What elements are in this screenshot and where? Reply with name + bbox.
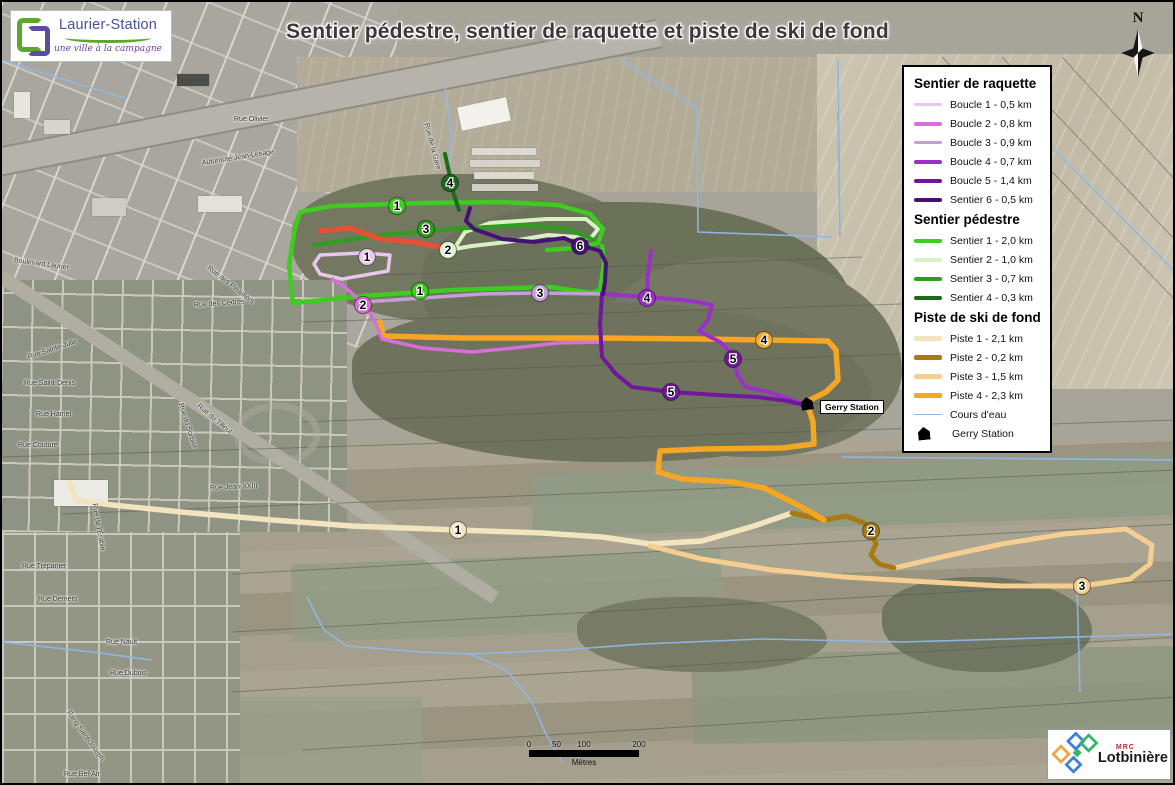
legend-swatch xyxy=(914,336,942,341)
trail-marker-number: 4 xyxy=(644,291,651,305)
legend-item-label: Sentier 4 - 0,3 km xyxy=(950,292,1033,304)
trail-marker-number: 2 xyxy=(360,298,367,312)
legend-panel: Sentier de raquetteBoucle 1 - 0,5 kmBouc… xyxy=(902,65,1052,453)
map-sheet: 1342112364554123 Rue TalbotRue OlivierAu… xyxy=(0,0,1175,785)
legend-item-label: Sentier 2 - 1,0 km xyxy=(950,254,1033,266)
legend-item-label: Gerry Station xyxy=(952,428,1014,440)
legend-item: Piste 2 - 0,2 km xyxy=(914,348,1042,367)
mrc-name-label: Lotbinière xyxy=(1098,751,1168,766)
legend-item-label: Sentier 3 - 0,7 km xyxy=(950,273,1033,285)
legend-item: Cours d'eau xyxy=(914,405,1042,424)
trail-marker-number: 3 xyxy=(537,286,544,300)
legend-swatch xyxy=(914,103,942,106)
legend-item: Sentier 1 - 2,0 km xyxy=(914,231,1042,250)
legend-item: Boucle 4 - 0,7 km xyxy=(914,152,1042,171)
street-label: Rue Trépanier xyxy=(22,563,66,570)
trail-marker-number: 1 xyxy=(364,250,371,264)
legend-swatch xyxy=(914,355,942,360)
scale-unit: Mètres xyxy=(529,758,639,767)
legend-item: Boucle 2 - 0,8 km xyxy=(914,114,1042,133)
legend-item: Piste 4 - 2,3 km xyxy=(914,386,1042,405)
legend-swatch xyxy=(914,296,942,300)
legend-swatch xyxy=(914,179,942,183)
legend-swatch xyxy=(914,393,942,398)
legend-item-label: Piste 2 - 0,2 km xyxy=(950,352,1023,364)
legend-item: Sentier 4 - 0,3 km xyxy=(914,288,1042,307)
legend-item-label: Piste 1 - 2,1 km xyxy=(950,333,1023,345)
street-label: Rue Hamel xyxy=(36,411,71,418)
street-label: Rue Couture xyxy=(18,442,58,449)
trail-marker-number: 1 xyxy=(455,523,462,537)
legend-item-label: Cours d'eau xyxy=(950,409,1006,421)
legend-swatch xyxy=(914,198,942,202)
trail-marker-number: 4 xyxy=(447,176,454,190)
municipality-tagline: une ville à la campagne xyxy=(49,45,167,54)
legend-item: Sentier 3 - 0,7 km xyxy=(914,269,1042,288)
legend-item-label: Boucle 2 - 0,8 km xyxy=(950,118,1032,130)
legend-swatch xyxy=(914,374,942,379)
scale-ticks: 050100200 xyxy=(529,740,639,750)
legend-swatch xyxy=(914,122,942,126)
north-arrow: N xyxy=(1114,10,1162,84)
north-label: N xyxy=(1114,10,1162,27)
trail-marker-number: 1 xyxy=(394,199,401,213)
legend-item: Piste 3 - 1,5 km xyxy=(914,367,1042,386)
trail-boucle-5 xyxy=(600,294,804,405)
legend-swatch xyxy=(914,258,942,262)
logo-swoosh xyxy=(65,33,151,43)
legend-item-label: Sentier 6 - 0,5 km xyxy=(950,194,1033,206)
trail-marker-number: 3 xyxy=(1079,579,1086,593)
municipality-name: Laurier-Station xyxy=(49,18,167,33)
legend-item-label: Boucle 5 - 1,4 km xyxy=(950,175,1032,187)
legend-swatch xyxy=(914,277,942,281)
legend-item: Boucle 3 - 0,9 km xyxy=(914,133,1042,152)
legend-item-label: Boucle 1 - 0,5 km xyxy=(950,99,1032,111)
legend-section-heading: Sentier de raquette xyxy=(914,76,1042,91)
legend-item-label: Sentier 1 - 2,0 km xyxy=(950,235,1033,247)
street-label: Rue Dubois xyxy=(110,670,147,677)
laurier-station-logo: Laurier-Station une ville à la campagne xyxy=(10,10,172,62)
laurier-station-logo-icon xyxy=(15,14,49,58)
legend-item: Sentier 6 - 0,5 km xyxy=(914,190,1042,209)
trail-marker-number: 3 xyxy=(423,222,430,236)
scale-bar: 050100200 Mètres xyxy=(529,740,639,767)
legend-item-label: Piste 3 - 1,5 km xyxy=(950,371,1023,383)
scale-tick: 200 xyxy=(632,740,645,749)
legend-swatch xyxy=(914,239,942,243)
trail-marker-number: 6 xyxy=(577,239,584,253)
mrc-diamonds-icon xyxy=(1050,732,1098,778)
legend-item-label: Piste 4 - 2,3 km xyxy=(950,390,1023,402)
street-label: Rue Nault xyxy=(106,639,137,646)
street-label: Rue Olivier xyxy=(234,116,269,123)
trail-piste-3 xyxy=(650,529,1152,586)
street-label: Rue Demers xyxy=(38,596,77,603)
legend-swatch xyxy=(914,160,942,164)
stream-legend-line xyxy=(914,414,942,416)
mrc-lotbiniere-logo: MRC Lotbinière xyxy=(1047,729,1171,780)
trail-marker-number: 1 xyxy=(417,284,424,298)
trail-marker-number: 2 xyxy=(445,243,452,257)
gerry-station-legend-icon xyxy=(917,426,930,440)
map-title: Sentier pédestre, sentier de raquette et… xyxy=(2,20,1173,44)
legend-item: Boucle 5 - 1,4 km xyxy=(914,171,1042,190)
trail-marker-number: 4 xyxy=(761,333,768,347)
scale-tick: 50 xyxy=(552,740,561,749)
scale-tick: 0 xyxy=(527,740,531,749)
trail-piste-2 xyxy=(792,513,894,568)
street-label: Rue Bel-Air xyxy=(64,771,100,778)
legend-item: Sentier 2 - 1,0 km xyxy=(914,250,1042,269)
legend-item-label: Boucle 4 - 0,7 km xyxy=(950,156,1032,168)
trail-marker-number: 5 xyxy=(730,352,737,366)
trail-piste-1 xyxy=(70,483,792,544)
compass-star-icon xyxy=(1115,27,1161,79)
trail-marker-number: 5 xyxy=(668,385,675,399)
street-label: Rue Saint-Denis xyxy=(24,380,75,387)
trail-marker-number: 2 xyxy=(868,524,875,538)
scale-bar-rule xyxy=(529,750,639,757)
legend-swatch xyxy=(914,141,942,144)
legend-item-label: Boucle 3 - 0,9 km xyxy=(950,137,1032,149)
legend-section-heading: Piste de ski de fond xyxy=(914,310,1042,325)
gerry-station-label: Gerry Station xyxy=(820,400,884,414)
legend-item: Boucle 1 - 0,5 km xyxy=(914,95,1042,114)
legend-section-heading: Sentier pédestre xyxy=(914,212,1042,227)
legend-item: Gerry Station xyxy=(914,424,1042,443)
legend-item: Piste 1 - 2,1 km xyxy=(914,329,1042,348)
scale-tick: 100 xyxy=(577,740,590,749)
